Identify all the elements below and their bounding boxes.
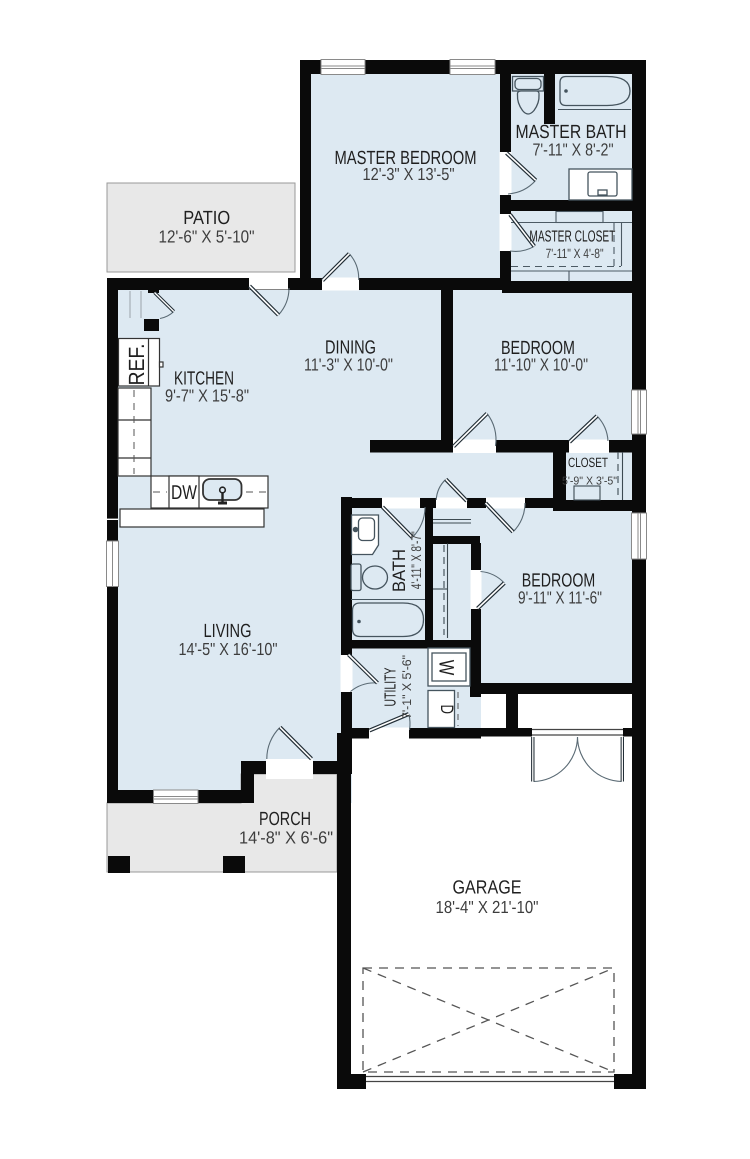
svg-text:14'-5" X 16'-10": 14'-5" X 16'-10" (179, 639, 278, 659)
svg-text:14'-8" X 6'-6": 14'-8" X 6'-6" (239, 828, 333, 848)
svg-text:DW: DW (171, 482, 197, 504)
svg-text:7'-1" X 5'-6": 7'-1" X 5'-6" (400, 655, 414, 719)
svg-text:CLOSET: CLOSET (568, 455, 608, 470)
svg-text:REF.: REF. (124, 344, 149, 386)
svg-text:GARAGE: GARAGE (453, 878, 522, 899)
svg-text:W: W (435, 660, 458, 676)
svg-text:9'-11" X 11'-6": 9'-11" X 11'-6" (518, 588, 602, 608)
svg-text:12'-6" X 5'-10": 12'-6" X 5'-10" (159, 227, 255, 247)
svg-text:12'-3" X 13'-5": 12'-3" X 13'-5" (363, 164, 455, 184)
svg-text:D: D (437, 705, 457, 715)
svg-text:7'-11" X 4'-8": 7'-11" X 4'-8" (546, 246, 604, 261)
svg-text:5'-9" X 3'-5": 5'-9" X 3'-5" (562, 476, 617, 488)
svg-text:UTILITY: UTILITY (383, 667, 400, 706)
svg-text:7'-11" X 8'-2": 7'-11" X 8'-2" (533, 140, 614, 160)
svg-text:4'-11" X 8'-7": 4'-11" X 8'-7" (408, 531, 424, 589)
svg-text:BATH: BATH (389, 549, 409, 592)
svg-text:11'-3" X 10'-0": 11'-3" X 10'-0" (304, 355, 393, 375)
svg-text:9'-7" X 15'-8": 9'-7" X 15'-8" (165, 386, 249, 406)
svg-text:11'-10" X 10'-0": 11'-10" X 10'-0" (494, 355, 588, 375)
svg-text:18'-4" X 21'-10": 18'-4" X 21'-10" (436, 897, 539, 917)
svg-text:MASTER CLOSET: MASTER CLOSET (529, 229, 615, 246)
